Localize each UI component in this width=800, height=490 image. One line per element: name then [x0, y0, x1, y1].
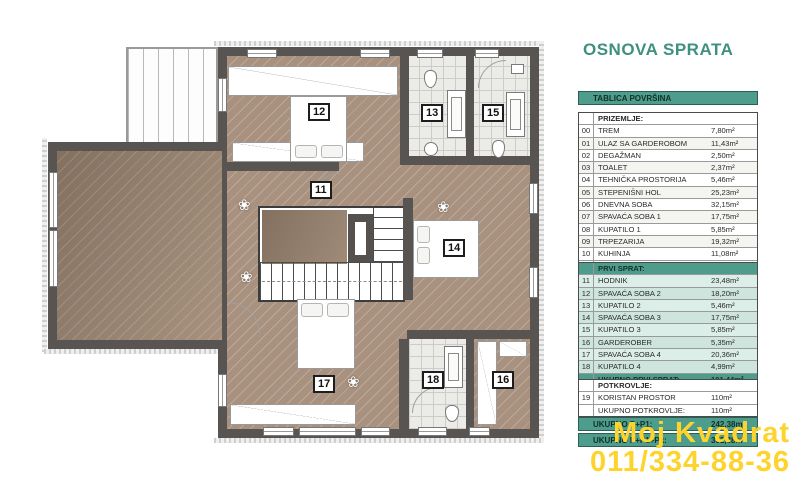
dimension-band-left: [42, 138, 47, 352]
room-area: 4,99m²: [709, 361, 757, 372]
window: [475, 49, 499, 58]
table-row: 09 TRPEZARIJA 19,32m²: [579, 235, 757, 247]
dimension-band-bottom: [214, 438, 544, 443]
room-label-17: 17: [313, 375, 335, 393]
room-name: TOALET: [594, 162, 709, 173]
table-potkrovlje: POTKROVLJE: 19 KORISTAN PROSTOR 110m² UK…: [578, 379, 758, 417]
wardrobe: [499, 341, 527, 357]
table-row: 11 HODNIK 23,48m²: [579, 274, 757, 286]
room-area: 25,23m²: [709, 187, 757, 198]
terrace-door: [218, 78, 227, 112]
table-title: TABLICA POVRŠINA: [579, 94, 757, 103]
wardrobe: [230, 404, 356, 425]
room-area: 2,37m²: [709, 162, 757, 173]
pillow: [321, 145, 343, 158]
watermark-phone: 011/334-88-36: [590, 448, 790, 477]
room-number: 00: [579, 125, 594, 136]
room-number: 16: [579, 337, 594, 348]
section-header-label: PRVI SPRAT:: [594, 263, 709, 274]
room-label-12: 12: [308, 103, 330, 121]
num-cell: [579, 405, 594, 416]
room-name: GARDEROBER: [594, 337, 709, 348]
section-header: PRIZEMLJE:: [579, 113, 757, 124]
room-number: 09: [579, 236, 594, 247]
watermark-brand: Moj Kvadrat: [590, 419, 790, 448]
table-row: 10 KUHINJA 11,08m²: [579, 247, 757, 259]
window: [418, 427, 447, 436]
room-number: 03: [579, 162, 594, 173]
room-name: KUPATILO 2: [594, 300, 709, 311]
room-number: 08: [579, 224, 594, 235]
room-area: 23,48m²: [709, 275, 757, 286]
wall-below-room14: [407, 330, 530, 339]
room-name: KUPATILO 4: [594, 361, 709, 372]
room-name: TREM: [594, 125, 709, 136]
wall-below-bathrooms: [407, 156, 530, 165]
num-cell: [579, 263, 594, 274]
section-header-label: POTKROVLJE:: [594, 380, 709, 391]
table-prizemlje: PRIZEMLJE: 00 TREM 7,80m² 01 ULAZ SA GAR…: [578, 112, 758, 273]
pillow: [417, 247, 430, 264]
window: [361, 427, 390, 436]
room-area: 7,80m²: [709, 125, 757, 136]
room-name: TEHNIČKA PROSTORIJA: [594, 174, 709, 185]
num-cell: [579, 380, 594, 391]
area-cell: [709, 113, 757, 124]
stair-walkline: [262, 281, 402, 282]
sink-icon: [511, 64, 524, 74]
room-number: 02: [579, 150, 594, 161]
window: [360, 49, 390, 58]
bathtub-icon: [447, 90, 466, 138]
room-number: 13: [579, 300, 594, 311]
room-label-11: 11: [310, 181, 332, 199]
total-row: UKUPNO POTKROVLJE: 110m²: [579, 404, 757, 416]
area-cell: [709, 263, 757, 274]
room-area: 11,43m²: [709, 138, 757, 149]
sink-icon: [424, 142, 438, 156]
room-area: 5,35m²: [709, 337, 757, 348]
room-area: 18,20m²: [709, 288, 757, 299]
pillow: [295, 145, 317, 158]
room-number: 18: [579, 361, 594, 372]
section-header: POTKROVLJE:: [579, 380, 757, 391]
room-area: 5,46m²: [709, 300, 757, 311]
table-row: 13 KUPATILO 2 5,46m²: [579, 299, 757, 311]
room-number: 01: [579, 138, 594, 149]
total-label: UKUPNO POTKROVLJE:: [594, 405, 709, 416]
dimension-band-left-wing-bottom: [44, 349, 224, 354]
page-title: OSNOVA SPRATA: [583, 40, 733, 60]
room-name: ULAZ SA GARDEROBOM: [594, 138, 709, 149]
room-number: 14: [579, 312, 594, 323]
room-area: 20,36m²: [709, 349, 757, 360]
room-name: KUPATILO 3: [594, 324, 709, 335]
table-rows: 11 HODNIK 23,48m² 12 SPAVAĆA SOBA 2 18,2…: [579, 274, 757, 372]
room-name: SPAVAĆA SOBA 1: [594, 211, 709, 222]
watermark: Moj Kvadrat 011/334-88-36: [590, 419, 790, 477]
room-label-18: 18: [422, 371, 444, 389]
room-area: 32,15m²: [709, 199, 757, 210]
stair-treads-upper: [373, 208, 403, 262]
room-number: 06: [579, 199, 594, 210]
room-label-13: 13: [421, 104, 443, 122]
window: [218, 374, 227, 407]
wall-bath18-garderober: [466, 339, 474, 429]
table-row: 19 KORISTAN PROSTOR 110m²: [579, 391, 757, 403]
table-row: 17 SPAVAĆA SOBA 4 20,36m²: [579, 348, 757, 360]
wall-right-of-stairs: [403, 198, 413, 300]
table-row: 02 DEGAŽMAN 2,50m²: [579, 149, 757, 161]
room-number: 04: [579, 174, 594, 185]
plant-icon: ❀: [347, 373, 360, 391]
wardrobe: [228, 66, 398, 96]
room-name: KUHINJA: [594, 248, 709, 259]
room-name: SPAVAĆA SOBA 4: [594, 349, 709, 360]
floor-plan-page: ❀ ❀ ❀ ❀ 11 12 13 14 15 16 17 18 OSNOVA S…: [0, 0, 800, 490]
window: [469, 427, 490, 436]
plant-icon: ❀: [437, 198, 450, 216]
room-number: 15: [579, 324, 594, 335]
room-area: 2,50m²: [709, 150, 757, 161]
pillow: [301, 303, 323, 317]
dimension-band-top: [214, 41, 544, 46]
table-title-bar: TABLICA POVRŠINA: [578, 91, 758, 105]
room-name: KORISTAN PROSTOR: [594, 392, 709, 403]
num-cell: [579, 113, 594, 124]
section-header: PRVI SPRAT:: [579, 263, 757, 274]
table-prvi-sprat: PRVI SPRAT: 11 HODNIK 23,48m² 12 SPAVAĆA…: [578, 262, 758, 386]
wall-room12-bathroom: [400, 56, 409, 165]
window: [299, 427, 356, 436]
table-row: 01 ULAZ SA GARDEROBOM 11,43m²: [579, 137, 757, 149]
room-area: 5,85m²: [709, 224, 757, 235]
table-row: 16 GARDEROBER 5,35m²: [579, 336, 757, 348]
room-name: HODNIK: [594, 275, 709, 286]
table-row: 08 KUPATILO 1 5,85m²: [579, 223, 757, 235]
room-area: 17,75m²: [709, 312, 757, 323]
room-number: 19: [579, 392, 594, 403]
table-row: 07 SPAVAĆA SOBA 1 17,75m²: [579, 210, 757, 222]
area-cell: [709, 380, 757, 391]
room-number: 05: [579, 187, 594, 198]
window: [49, 172, 58, 228]
table-row: 18 KUPATILO 4 4,99m²: [579, 360, 757, 372]
pillow: [327, 303, 349, 317]
room-number: 07: [579, 211, 594, 222]
room-number: 12: [579, 288, 594, 299]
window: [263, 427, 294, 436]
table-row: 12 SPAVAĆA SOBA 2 18,20m²: [579, 287, 757, 299]
window: [49, 230, 58, 287]
bathtub-icon: [444, 346, 463, 388]
room-label-14: 14: [443, 239, 465, 257]
room-area: 5,46m²: [709, 174, 757, 185]
room-label-15: 15: [482, 104, 504, 122]
room-name: KUPATILO 1: [594, 224, 709, 235]
room-number: 10: [579, 248, 594, 259]
plant-icon: ❀: [238, 196, 251, 214]
window: [247, 49, 277, 58]
section-header-label: PRIZEMLJE:: [594, 113, 709, 124]
table-rows: 00 TREM 7,80m² 01 ULAZ SA GARDEROBOM 11,…: [579, 124, 757, 259]
chimney-flue: [355, 222, 366, 255]
plant-icon: ❀: [240, 268, 253, 286]
wall-bath13-15: [466, 56, 474, 163]
wall-room17-bath18: [399, 339, 409, 429]
room-name: SPAVAĆA SOBA 2: [594, 288, 709, 299]
window: [529, 267, 538, 298]
room-area: 19,32m²: [709, 236, 757, 247]
pillow: [417, 226, 430, 243]
table-row: 00 TREM 7,80m²: [579, 124, 757, 136]
table-row: 06 DNEVNA SOBA 32,15m²: [579, 198, 757, 210]
floor-plan: ❀ ❀ ❀ ❀ 11 12 13 14 15 16 17 18: [0, 0, 565, 490]
bathtub-icon: [506, 92, 525, 137]
window: [529, 183, 538, 214]
terrace-roof: [126, 47, 218, 147]
room-name: DEGAŽMAN: [594, 150, 709, 161]
floor-open-space: [57, 151, 222, 340]
table-rows: 19 KORISTAN PROSTOR 110m²: [579, 391, 757, 403]
room-name: DNEVNA SOBA: [594, 199, 709, 210]
room-number: 17: [579, 349, 594, 360]
stair-void: [262, 210, 347, 264]
room-area: 11,08m²: [709, 248, 757, 259]
room-label-16: 16: [492, 371, 514, 389]
room-number: 11: [579, 275, 594, 286]
table-row: 03 TOALET 2,37m²: [579, 161, 757, 173]
table-row: 04 TEHNIČKA PROSTORIJA 5,46m²: [579, 173, 757, 185]
wall-below-room12: [227, 162, 339, 171]
room-area: 17,75m²: [709, 211, 757, 222]
table-row: 05 STEPENIŠNI HOL 25,23m²: [579, 186, 757, 198]
window: [417, 49, 443, 58]
room-area: 110m²: [709, 392, 757, 403]
room-name: SPAVAĆA SOBA 3: [594, 312, 709, 323]
total-value: 110m²: [709, 405, 757, 416]
room-name: STEPENIŠNI HOL: [594, 187, 709, 198]
table-row: 14 SPAVAĆA SOBA 3 17,75m²: [579, 311, 757, 323]
room-area: 5,85m²: [709, 324, 757, 335]
room-name: TRPEZARIJA: [594, 236, 709, 247]
dimension-band-right: [539, 41, 544, 441]
table-row: 15 KUPATILO 3 5,85m²: [579, 323, 757, 335]
